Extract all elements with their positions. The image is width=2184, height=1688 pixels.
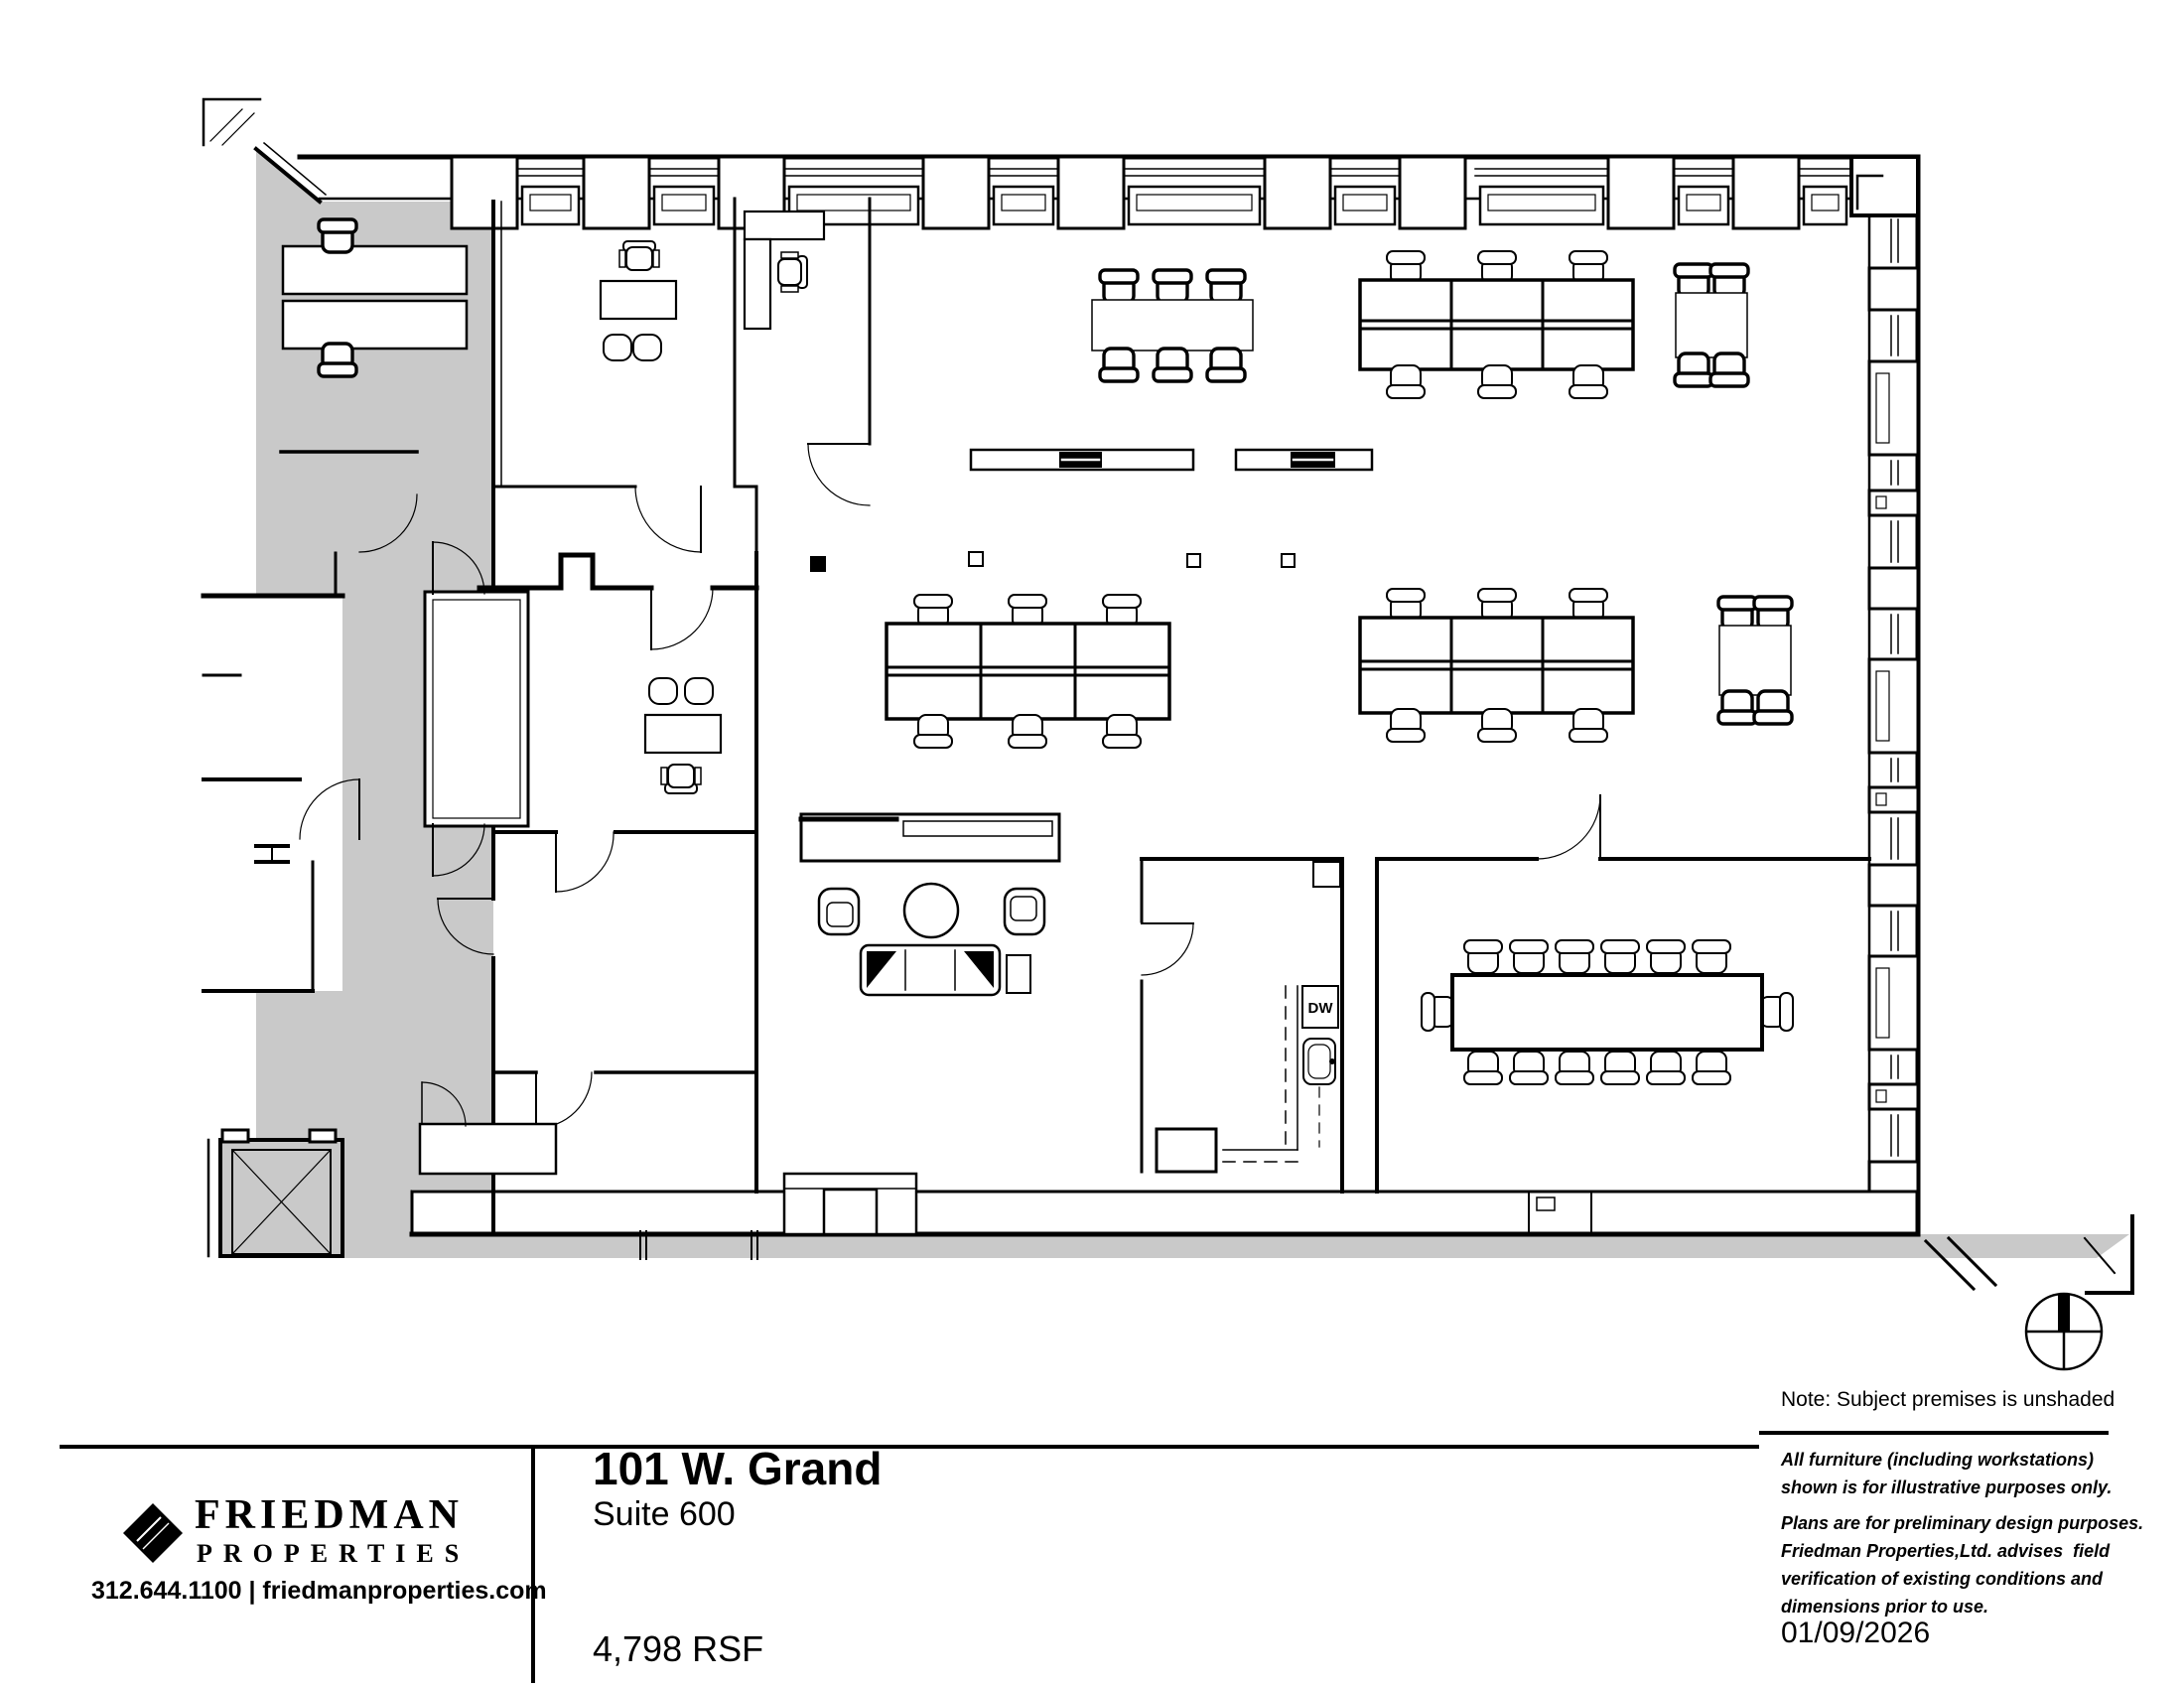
plans-disclaimer-line: verification of existing conditions and — [1781, 1565, 2143, 1593]
exterior-window-wall-right — [1851, 157, 1918, 1234]
entry-vestibule — [425, 542, 528, 876]
bottom-wall — [412, 1174, 2132, 1293]
private-office-a — [601, 241, 676, 360]
floor-plan: DW — [0, 0, 2184, 1321]
footer-divider — [531, 1445, 535, 1683]
elevator-shaft — [220, 1130, 342, 1256]
area-label: 4,798 RSF — [593, 1628, 763, 1670]
floor-plan-sheet: DW — [0, 0, 2184, 1688]
footer-rule — [60, 1445, 1759, 1449]
suite-label: Suite 600 — [593, 1495, 736, 1534]
brand-name: FRIEDMAN — [195, 1491, 464, 1539]
kitchen: DW — [1142, 859, 1342, 1192]
diamond-logo-icon — [123, 1503, 183, 1563]
building-title: 101 W. Grand — [593, 1442, 882, 1495]
plans-disclaimer-line: Friedman Properties,Ltd. advises field — [1781, 1537, 2143, 1565]
plans-disclaimer-line: Plans are for preliminary design purpose… — [1781, 1509, 2143, 1537]
lounge-area — [801, 814, 1059, 995]
contact-line[interactable]: 312.644.1100 | friedmanproperties.com — [91, 1577, 547, 1606]
shading-note: Note: Subject premises is unshaded — [1781, 1388, 2115, 1412]
furniture-disclaimer-line: shown is for illustrative purposes only. — [1781, 1474, 2112, 1501]
plan-date: 01/09/2026 — [1781, 1617, 1930, 1650]
notes-rule — [1759, 1431, 2109, 1435]
compass-icon — [2021, 1289, 2107, 1374]
brand-subname: PROPERTIES — [197, 1539, 470, 1569]
exterior-window-wall-top — [204, 99, 1918, 228]
furniture-disclaimer: All furniture (including workstations) s… — [1781, 1446, 2112, 1501]
storage-credenzas — [810, 450, 1372, 572]
conference-room — [1377, 795, 1869, 1192]
plans-disclaimer: Plans are for preliminary design purpose… — [1781, 1509, 2143, 1620]
private-office-b — [745, 211, 824, 329]
reception-office — [645, 678, 721, 793]
furniture-disclaimer-line: All furniture (including workstations) — [1781, 1446, 2112, 1474]
dishwasher-label: DW — [1308, 1000, 1334, 1017]
open-office-clusters — [887, 251, 1792, 748]
